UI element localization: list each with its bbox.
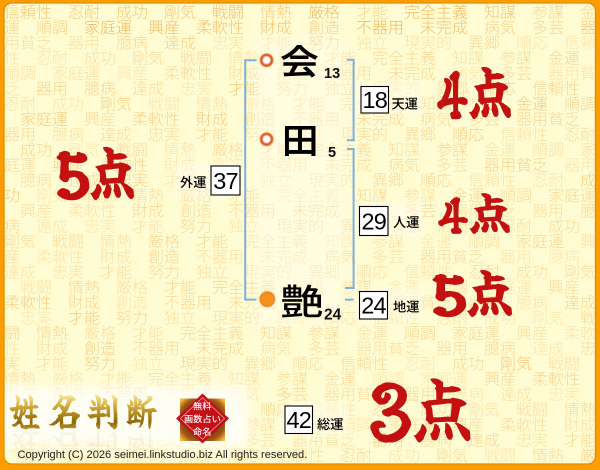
svg-text:18: 18 xyxy=(362,87,387,113)
svg-text:5: 5 xyxy=(328,145,336,161)
svg-text:37: 37 xyxy=(213,168,238,194)
svg-text:24: 24 xyxy=(324,307,342,324)
svg-text:Copyright (C) 2026 seimei.link: Copyright (C) 2026 seimei.linkstudio.biz… xyxy=(18,449,308,461)
svg-text:29: 29 xyxy=(361,208,386,234)
svg-text:42: 42 xyxy=(286,407,311,433)
svg-text:24: 24 xyxy=(361,293,386,319)
svg-text:13: 13 xyxy=(324,66,340,82)
